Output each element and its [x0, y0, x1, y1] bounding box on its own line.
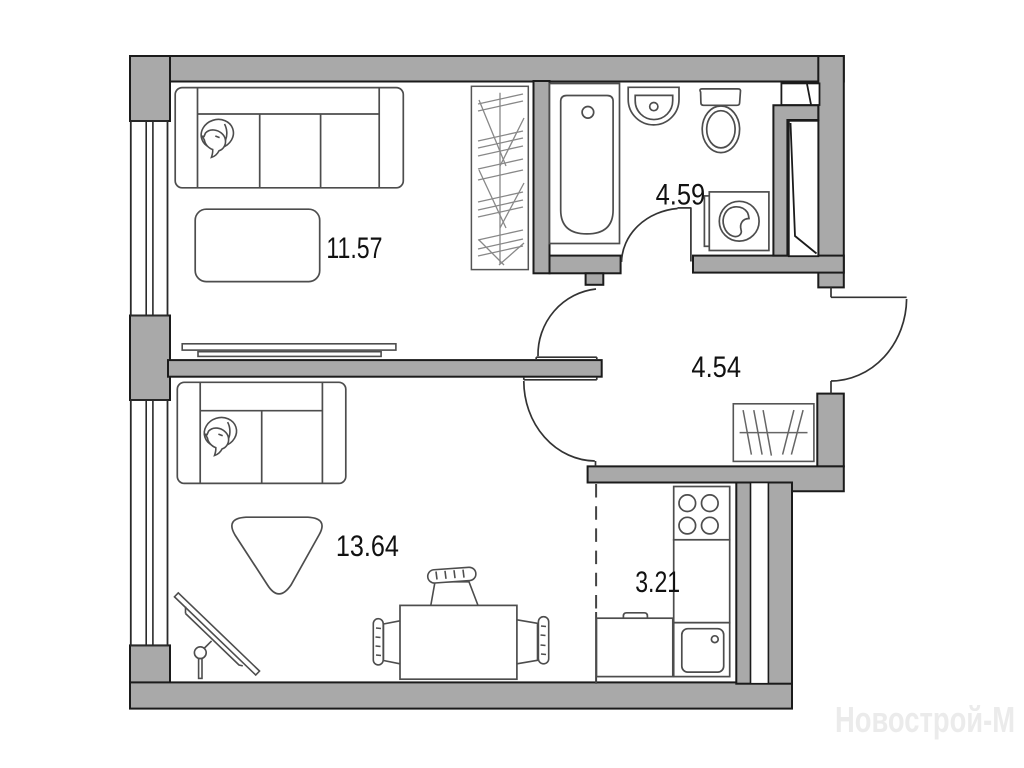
- svg-text:13.64: 13.64: [336, 529, 399, 563]
- svg-text:3.21: 3.21: [635, 565, 680, 599]
- svg-text:4.59: 4.59: [656, 177, 706, 210]
- svg-text:4.54: 4.54: [691, 350, 741, 383]
- svg-text:Новострой-М: Новострой-М: [835, 699, 1015, 740]
- svg-text:11.57: 11.57: [326, 231, 382, 265]
